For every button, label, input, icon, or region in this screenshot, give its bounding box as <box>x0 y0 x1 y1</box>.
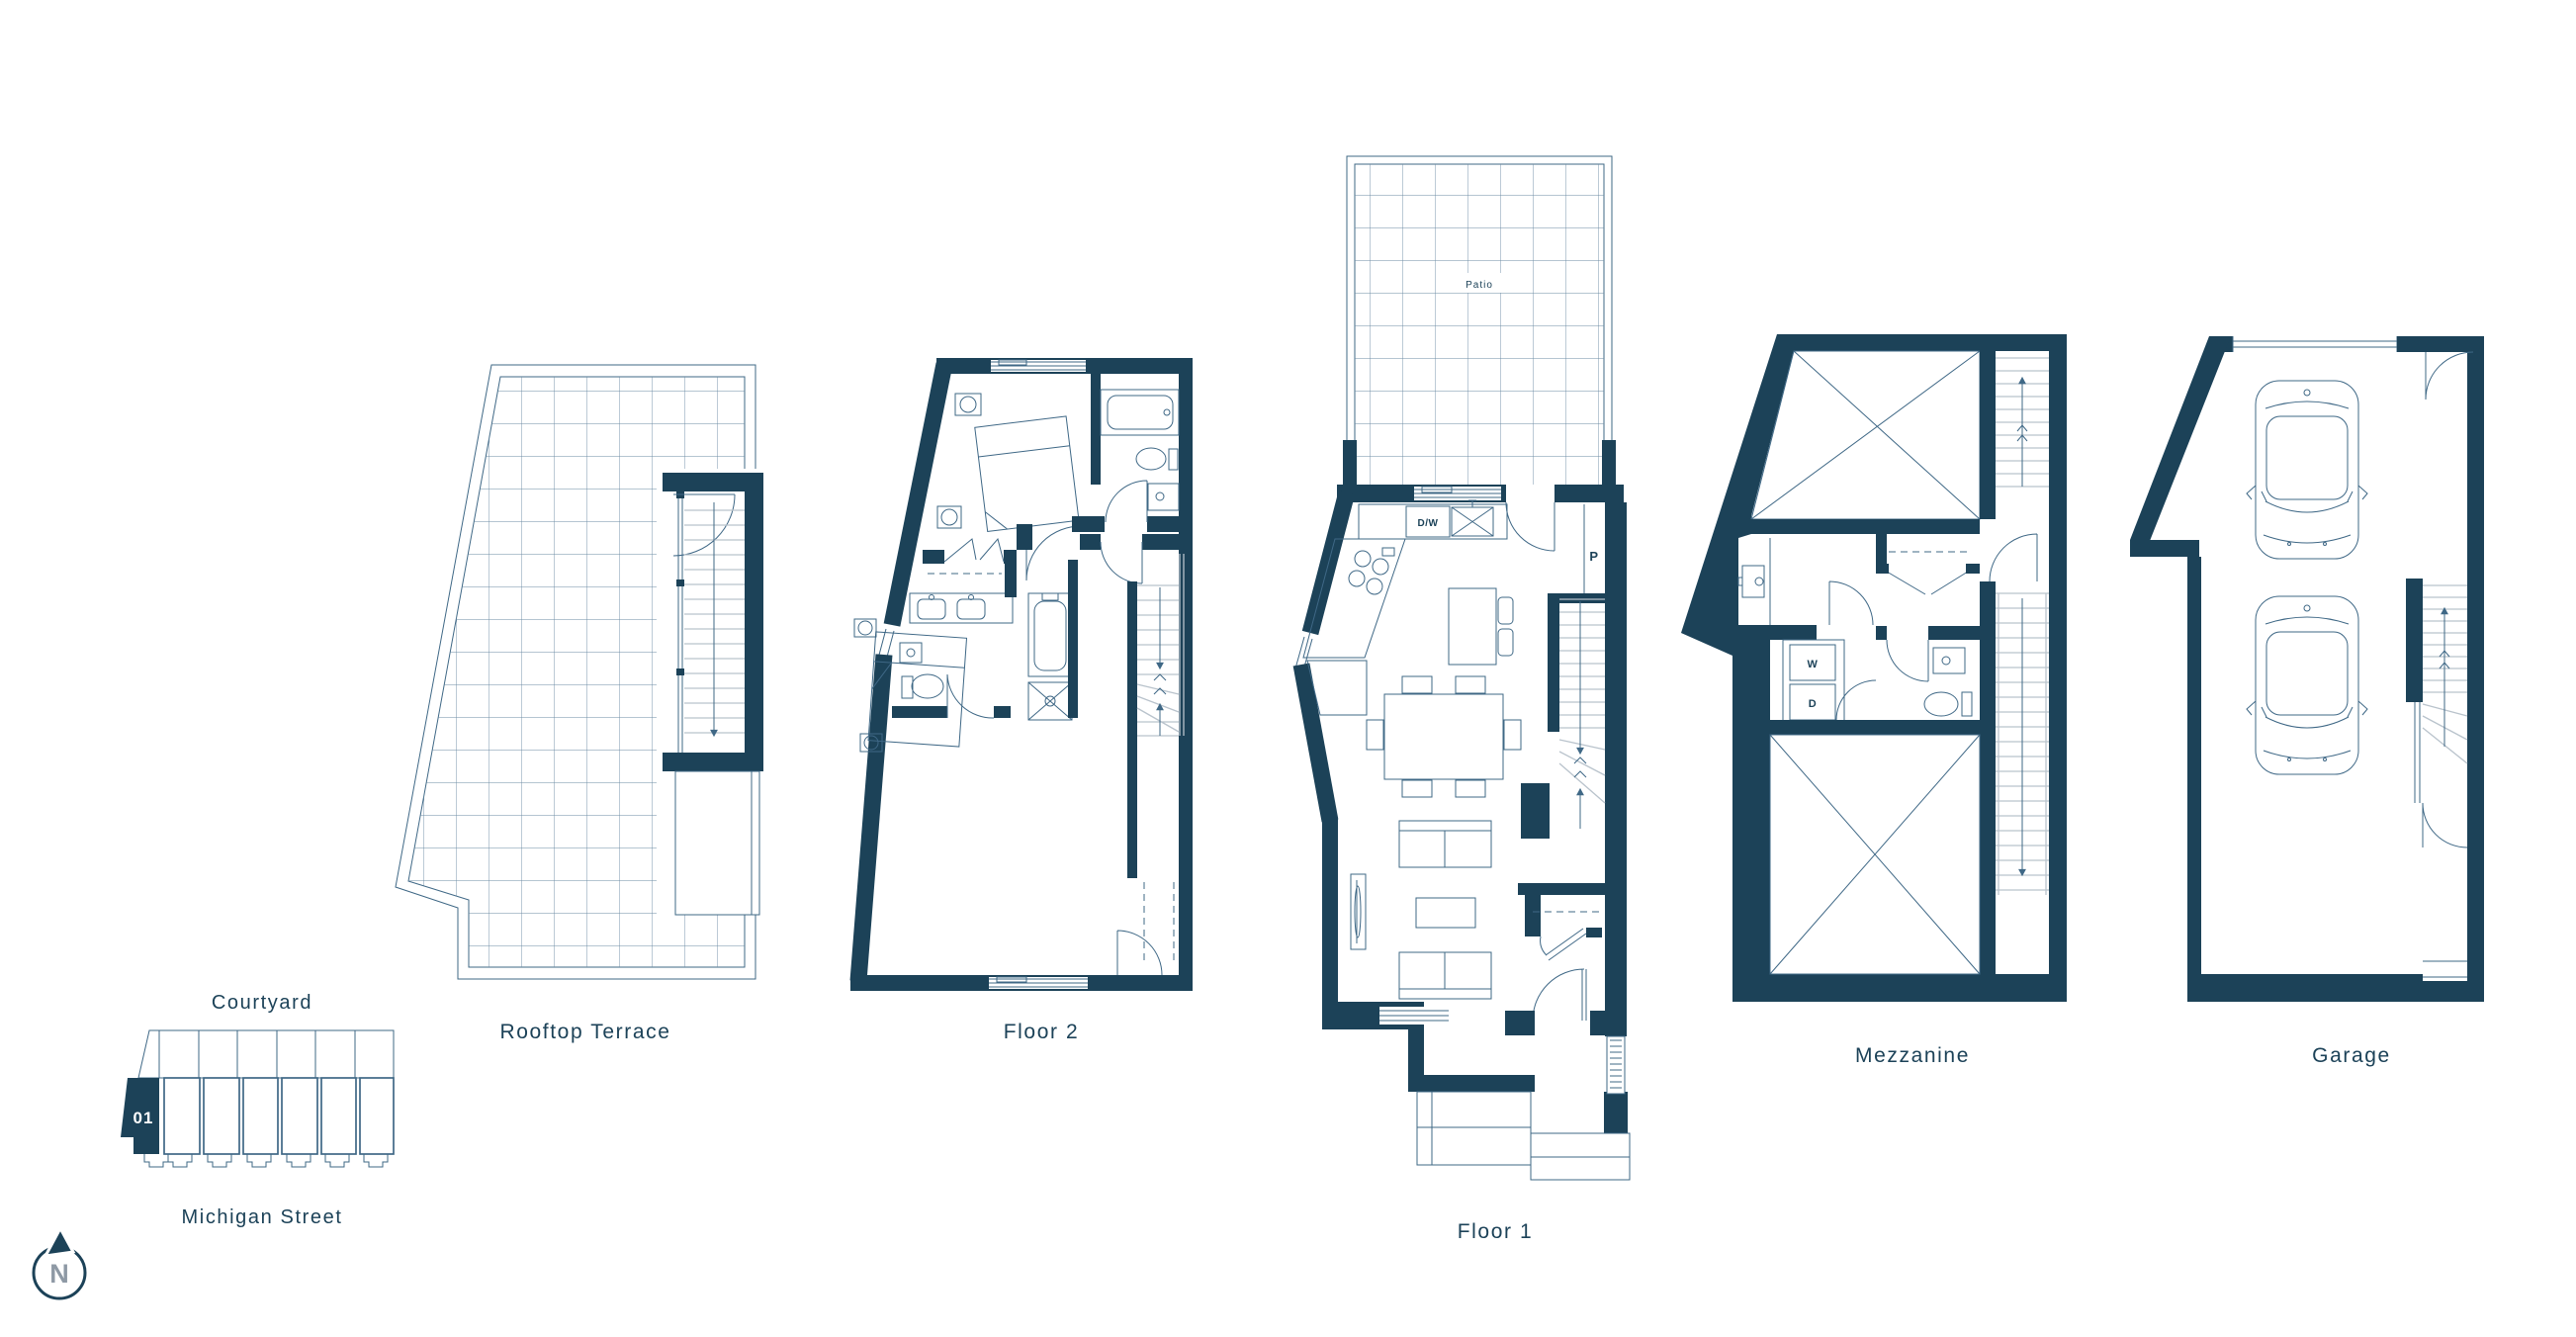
floor1-wall-right <box>1605 502 1627 1036</box>
floor2-stairhall-wall <box>1147 516 1193 532</box>
entry-wall <box>1505 1011 1535 1035</box>
floor1-right-window <box>1607 1036 1625 1094</box>
tv-screen <box>1355 886 1361 937</box>
floor2-hall-wall <box>1080 534 1101 550</box>
vanity-sink <box>957 599 985 619</box>
bathtub-basin <box>1108 396 1173 429</box>
tub-faucet <box>1164 409 1170 415</box>
closet-rods <box>1144 882 1174 961</box>
mezzanine-label: Mezzanine <box>1855 1044 1970 1067</box>
floor2-stair-treads <box>1137 585 1179 736</box>
plan-garage: Garage <box>2130 336 2484 1067</box>
bath-wall <box>1928 626 1980 640</box>
floor1-understair-wall <box>1518 883 1617 895</box>
landing-door-swing <box>1990 534 2037 581</box>
unit-01-label: 01 <box>133 1109 154 1127</box>
floor1-wall-left-lower <box>1322 817 1338 1005</box>
courtyard-label: Courtyard <box>212 992 312 1014</box>
mezz-wall-bottom <box>1732 974 2067 1002</box>
garage-wall-right <box>2467 336 2484 1002</box>
floor2-hall-wall <box>1142 534 1193 550</box>
floor2-wall-right <box>1179 358 1193 991</box>
north-arrow-icon <box>45 1228 73 1256</box>
stairhall-door-swing <box>1106 481 1147 522</box>
patio-door-swing <box>1506 502 1554 551</box>
garage-door-post <box>2397 336 2423 352</box>
north-compass: N <box>34 1228 85 1298</box>
toilet-2-tank <box>902 676 913 698</box>
toilet-tank <box>1169 449 1178 470</box>
chair <box>1456 780 1485 797</box>
sofa-cushions <box>1399 831 1491 867</box>
chair <box>1402 780 1432 797</box>
closet-stub <box>1966 564 1980 574</box>
sinkroom-door-swing <box>1829 581 1873 625</box>
closet-slider <box>1541 929 1586 960</box>
toilet-2 <box>912 674 943 698</box>
floor2-bath1-partition <box>1091 374 1101 485</box>
sink-2 <box>900 643 922 663</box>
garage-stair-wall <box>2406 579 2423 702</box>
wall-stub <box>1005 550 1017 597</box>
bath-wall <box>1876 626 1887 640</box>
floor2-stairhall-wall <box>1072 516 1105 532</box>
mezz-wall-band-2 <box>1770 720 1980 735</box>
floor1-stair-block <box>1521 783 1550 839</box>
pantry-label: P <box>1589 549 1598 564</box>
entry-wall <box>1590 1011 1627 1035</box>
rail-post <box>676 668 684 675</box>
garage-stair-door-swing <box>2423 803 2467 847</box>
floor2-stair-wall <box>1127 581 1137 878</box>
closet-stub <box>1586 928 1602 937</box>
mezz-stair-wall-mid <box>1980 581 1996 720</box>
patio-post <box>1602 440 1616 485</box>
mezz-bath-door-swing <box>1887 640 1928 681</box>
rooftop-terrace-label: Rooftop Terrace <box>499 1021 670 1043</box>
bath1-door-swing <box>1101 542 1142 583</box>
street-label: Michigan Street <box>182 1206 343 1228</box>
chair <box>1367 720 1383 750</box>
mezz-stair-wall-upper <box>1980 334 1996 519</box>
coffee-table <box>1416 898 1475 928</box>
plan-mezzanine: W D Mezzanine <box>1681 334 2067 1067</box>
vanity-sink <box>918 599 945 619</box>
car-2 <box>2247 596 2367 774</box>
lamp <box>960 397 976 412</box>
garage-wall-left <box>2187 557 2201 1002</box>
toilet <box>1924 692 1958 716</box>
closet-stub <box>1525 927 1541 936</box>
garage-wall-step <box>2130 540 2199 557</box>
unit-cell <box>243 1078 278 1154</box>
rooftop-stair-wall-right <box>745 473 763 771</box>
floor1-wall-bottom <box>1408 1075 1535 1092</box>
stove <box>1349 548 1394 594</box>
car-1 <box>2247 381 2367 559</box>
closet-wall <box>923 550 944 564</box>
dryer-label: D <box>1809 698 1817 710</box>
floor1-stair-wall <box>1548 593 1559 732</box>
rail-post <box>676 579 684 586</box>
bifold-doors <box>944 539 1004 562</box>
unit-cell <box>204 1078 239 1154</box>
floor1-stair-treads <box>1559 599 1605 803</box>
garage-wall-left-slant <box>2130 336 2231 546</box>
bathtub-2-basin <box>1034 601 1066 670</box>
wall-stub <box>1017 524 1032 550</box>
floor2-bath2-wall <box>892 706 947 718</box>
hall-door-swing <box>1836 680 1876 720</box>
floor1-patio-door-gap <box>1506 485 1554 502</box>
sink-drain <box>1942 657 1950 665</box>
dishwasher-label: D/W <box>1418 518 1439 529</box>
chair <box>1456 676 1485 693</box>
unit-stoops <box>144 1154 388 1167</box>
floor2-entry-door-swing <box>1117 931 1162 975</box>
plan-rooftop-terrace: Rooftop Terrace <box>396 365 766 1043</box>
sofa-cushions <box>1399 952 1491 989</box>
unit-cell <box>164 1078 200 1154</box>
stool <box>1498 629 1513 656</box>
garage-side-door-swing <box>2426 352 2473 400</box>
plan-floor-2: Floor 2 <box>850 358 1193 1043</box>
sink-2-drain <box>907 649 915 657</box>
floorplan-sheet: Rooftop Terrace <box>0 0 2576 1337</box>
lamp <box>941 509 957 525</box>
tv-console <box>1351 874 1366 949</box>
site-key-plan: Courtyard 01 Michigan Street <box>121 992 394 1228</box>
toilet-tank <box>1962 692 1972 716</box>
lamp <box>858 621 872 635</box>
porch-steps <box>1417 1092 1531 1165</box>
kitchen-island <box>1449 588 1496 665</box>
mezz-wall-band <box>1733 519 1980 534</box>
rooftop-lower-roof <box>675 771 759 915</box>
chair <box>1402 676 1432 693</box>
north-letter: N <box>49 1259 69 1289</box>
tub-faucet-deck <box>1042 593 1058 600</box>
sink-tap <box>1738 578 1742 585</box>
plan-floor-1: Patio D/W <box>1295 156 1630 1243</box>
bedroom2-door-swing <box>947 674 994 718</box>
linen-cabinet-x <box>1028 682 1072 720</box>
garage-stair-rail <box>2415 702 2420 803</box>
floor2-interior-wall <box>1068 560 1078 718</box>
entry-door-swing <box>1533 969 1586 1021</box>
courtyard-row-dividers <box>159 1030 355 1078</box>
floorplan-drawing: Rooftop Terrace <box>0 0 2576 1337</box>
unit-cell <box>360 1078 394 1154</box>
kitchen-sink-x <box>1452 500 1493 536</box>
floor2-bed-1 <box>975 416 1079 532</box>
sink-drain <box>1156 492 1164 500</box>
floor-2-label: Floor 2 <box>1004 1021 1080 1043</box>
porch-step-lines <box>1417 1092 1531 1165</box>
rooftop-stair-wall-bottom <box>663 753 763 771</box>
patio-label: Patio <box>1466 280 1493 291</box>
garage-door <box>2233 336 2397 352</box>
floor1-entry-post <box>1604 1092 1628 1133</box>
unit-cell <box>321 1078 356 1154</box>
floor2-bath2-wall <box>994 706 1011 718</box>
floor1-wall-left-mid <box>1301 665 1330 821</box>
sink-faucet <box>1755 578 1763 585</box>
unit-cell <box>282 1078 317 1154</box>
garage-label: Garage <box>2312 1044 2391 1067</box>
closet-stub <box>1879 564 1889 574</box>
mezz-stair-wall-lower <box>1980 720 1996 974</box>
patio-post <box>1343 440 1357 485</box>
sink <box>1933 648 1965 673</box>
chair <box>1504 720 1521 750</box>
patio-grid <box>1355 164 1604 485</box>
toilet <box>1136 448 1166 470</box>
floor2-wall-left-upper <box>892 364 944 625</box>
dining-table <box>1384 694 1503 779</box>
washer-label: W <box>1808 659 1819 670</box>
bifold-doors <box>1887 572 1968 594</box>
nightstand <box>854 619 876 637</box>
floor-1-label: Floor 1 <box>1458 1220 1534 1243</box>
stool <box>1498 597 1513 624</box>
mezz-wall-top <box>1785 334 2067 351</box>
utility-sink <box>1742 566 1764 597</box>
mezz-wall-right <box>2049 334 2067 1002</box>
